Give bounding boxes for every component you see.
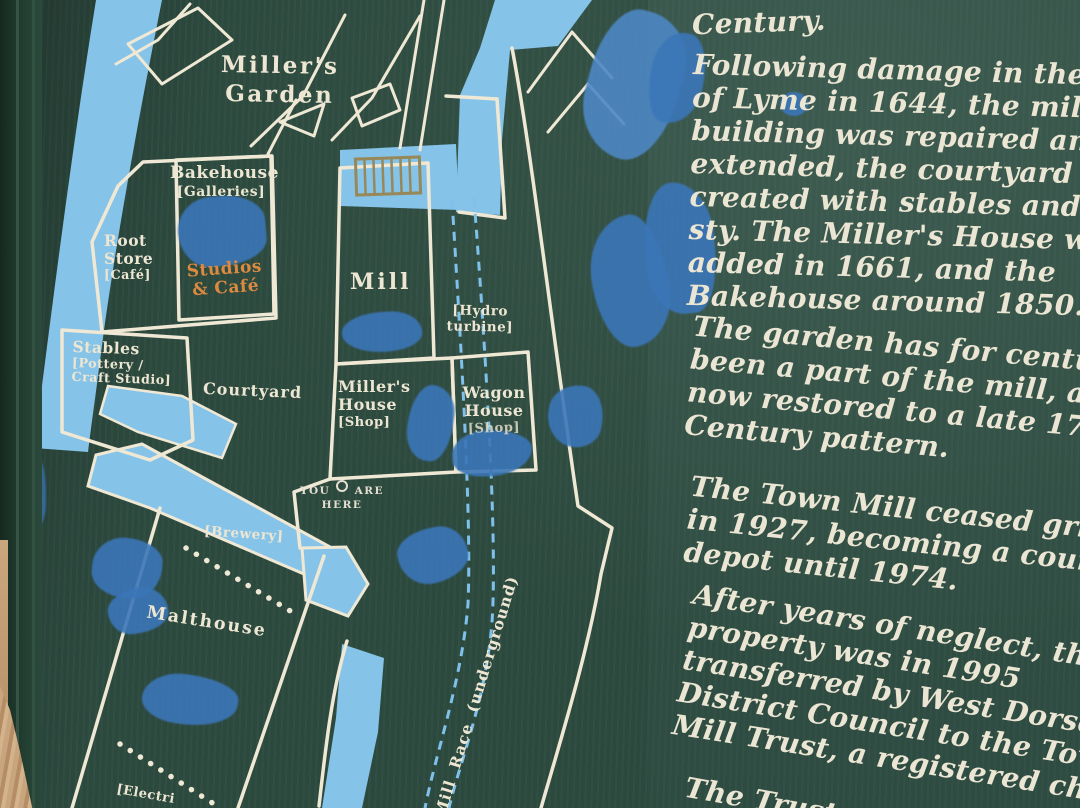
hydro-line2: turbine] bbox=[438, 319, 522, 336]
yah-line1: YOU ARE bbox=[294, 480, 390, 499]
channel-outlet bbox=[302, 547, 368, 616]
rootstore-line2: Store bbox=[104, 250, 174, 268]
paragraph-siege-of-lyme: Following damage in the Sie of Lyme in 1… bbox=[687, 48, 1080, 324]
label-stables: Stables [Pottery / Craft Studio] bbox=[71, 338, 191, 389]
wagon-line2: House bbox=[452, 402, 536, 420]
label-bakehouse: Bakehouse [Galleries] bbox=[170, 164, 272, 200]
yah-word-here: HERE bbox=[294, 499, 390, 513]
garden-line1: Miller's bbox=[212, 51, 348, 82]
millers-line1: Miller's bbox=[338, 378, 434, 396]
label-millers-garden: Miller's Garden bbox=[212, 51, 349, 111]
wagon-line3: [Shop] bbox=[452, 419, 536, 437]
millers-line2: House bbox=[338, 396, 434, 414]
text-line: Century. bbox=[691, 4, 826, 42]
town-mill-sign-photo: Miller's Garden Bakehouse [Galleries] St… bbox=[0, 0, 1080, 808]
bakehouse-name: Bakehouse bbox=[170, 164, 272, 184]
history-text-panel: Century. Following damage in the Sie of … bbox=[660, 0, 1080, 808]
label-wagon-house: Wagon House [Shop] bbox=[452, 384, 536, 436]
bakehouse-sub: [Galleries] bbox=[170, 184, 272, 200]
malthouse-east-line bbox=[238, 556, 324, 808]
paragraph-garden: The garden has for centuries been a part… bbox=[683, 310, 1080, 483]
yah-word-are: ARE bbox=[355, 485, 384, 497]
label-studios-cafe: Studios & Café bbox=[179, 257, 271, 301]
yah-word-you: YOU bbox=[300, 485, 330, 497]
label-millers-house: Miller's House [Shop] bbox=[338, 378, 434, 430]
mill-pond bbox=[340, 144, 459, 210]
rootstore-line1: Root bbox=[104, 232, 174, 250]
board-edge-groove bbox=[16, 0, 19, 808]
label-mill: Mill bbox=[350, 270, 411, 295]
paragraph-the-trust: The Trust bbox=[682, 771, 839, 808]
garden-line2: Garden bbox=[212, 80, 348, 111]
you-are-here-marker-icon bbox=[336, 480, 348, 492]
tail-race bbox=[322, 644, 384, 808]
rootstore-line3: [Café] bbox=[104, 268, 174, 283]
paragraph-century: Century. bbox=[691, 4, 826, 42]
label-root-store: Root Store [Café] bbox=[104, 232, 174, 282]
millers-line3: [Shop] bbox=[338, 415, 434, 430]
label-hydro-turbine: [Hydro turbine] bbox=[438, 303, 523, 335]
you-are-here-label: YOU ARE HERE bbox=[294, 480, 390, 512]
wagon-line1: Wagon bbox=[452, 384, 536, 402]
text-line: The Trust bbox=[682, 771, 839, 808]
paragraph-trust-transfer: After years of neglect, the property was… bbox=[670, 578, 1080, 808]
board-edge-groove bbox=[32, 0, 35, 808]
